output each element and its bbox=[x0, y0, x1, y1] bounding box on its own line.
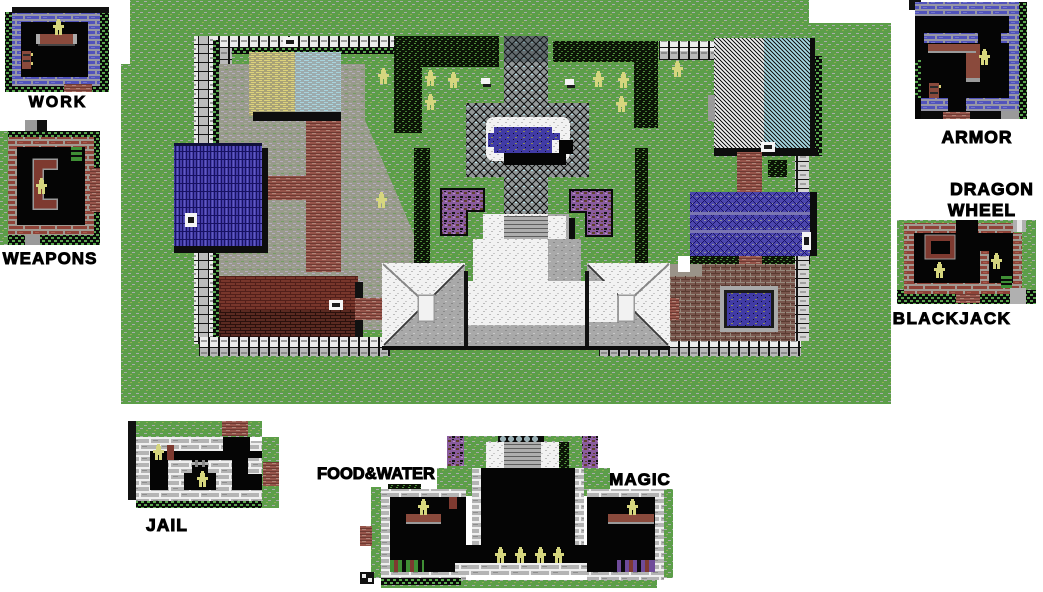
svg-text:WHEEL: WHEEL bbox=[948, 200, 1016, 220]
svg-text:WEAPONS: WEAPONS bbox=[3, 249, 98, 268]
svg-text:BLACKJACK: BLACKJACK bbox=[893, 309, 1011, 328]
svg-text:JAIL: JAIL bbox=[146, 515, 188, 535]
svg-text:ARMOR: ARMOR bbox=[941, 127, 1012, 147]
svg-text:FOOD&WATER: FOOD&WATER bbox=[317, 465, 435, 483]
svg-text:WORK: WORK bbox=[29, 94, 88, 111]
svg-text:DRAGON: DRAGON bbox=[950, 179, 1034, 199]
svg-text:MAGIC: MAGIC bbox=[609, 470, 671, 489]
